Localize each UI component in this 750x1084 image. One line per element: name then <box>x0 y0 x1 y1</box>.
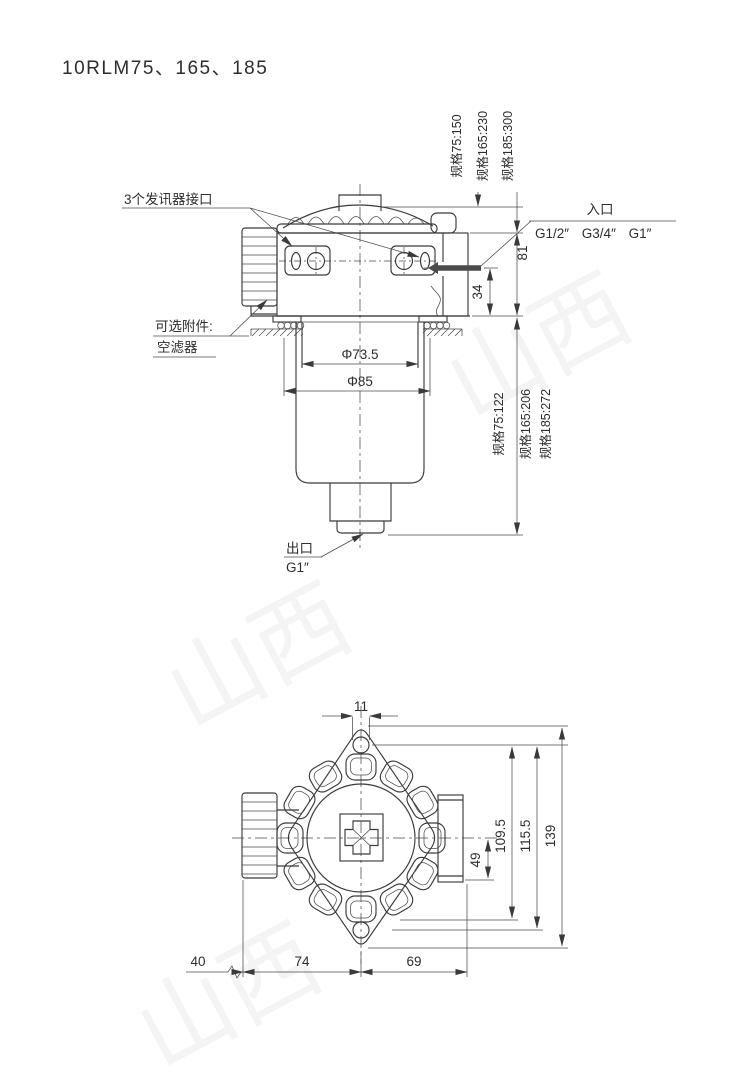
cap-grip-scallops <box>288 217 424 225</box>
breather-foot <box>251 306 277 314</box>
spec-bowl-75: 规格75:122 <box>491 392 506 455</box>
head-break-line <box>431 286 440 316</box>
breather-ribs <box>242 237 277 300</box>
dim-69: 69 <box>406 954 421 969</box>
inlet-flow-arrow <box>428 262 481 274</box>
optional-accessory-item: 空滤器 <box>157 340 198 355</box>
dim-11: 11 <box>354 699 368 714</box>
sensor-ports-callout: 3个发讯器接口 <box>124 191 213 207</box>
spec-bowl-185: 规格185:272 <box>538 389 553 459</box>
watermark-text: 山西 <box>120 906 338 1084</box>
center-outlet-square <box>340 814 383 861</box>
drawing-page: 山西 山西 山西 <box>0 0 750 1084</box>
spec-height-185: 规格185:300 <box>500 111 515 181</box>
dim-inner-diameter: Φ73.5 <box>341 347 378 362</box>
page-title: 10RLM75、165、185 <box>62 58 268 79</box>
flange-foot <box>419 316 447 322</box>
inlet-threads: G1/2″ G3/4″ G1″ <box>535 226 652 241</box>
sensor-port-group-2 <box>391 246 435 275</box>
dim-81: 81 <box>515 245 530 260</box>
dim-40: 40 <box>190 954 205 969</box>
flange-foot <box>273 316 301 322</box>
dim-115-5: 115.5 <box>518 820 533 853</box>
air-breather-block <box>242 228 277 314</box>
cap-side-tab <box>431 213 456 233</box>
optional-accessory-title: 可选附件: <box>155 319 213 334</box>
bottom-view <box>186 706 568 978</box>
outlet-boss <box>330 483 391 533</box>
side-port-block <box>438 795 463 882</box>
slot-dimension <box>322 716 398 740</box>
spec-height-75: 规格75:150 <box>449 114 464 177</box>
spec-height-165: 规格165:230 <box>475 111 490 181</box>
dim-49: 49 <box>468 852 483 867</box>
mounting-plate-hatch <box>251 329 462 336</box>
sensor-port-group-1 <box>285 246 330 275</box>
air-breather-block-bottom <box>242 793 299 878</box>
dim-109-5: 109.5 <box>493 819 508 853</box>
dim-34: 34 <box>470 284 485 300</box>
dim-74: 74 <box>294 954 310 969</box>
dim-139: 139 <box>543 825 558 848</box>
watermark-text: 山西 <box>150 566 368 749</box>
filter-cap <box>277 195 456 233</box>
technical-drawing: 山西 山西 山西 <box>0 0 750 1084</box>
bottom-view-right-dimensions <box>368 726 568 948</box>
dim-outer-diameter: Φ85 <box>347 374 373 389</box>
outlet-label: 出口 <box>286 541 313 556</box>
cap-lip <box>277 224 437 233</box>
outlet-thread: G1″ <box>286 560 309 575</box>
inlet-label: 入口 <box>587 202 614 217</box>
spec-bowl-165: 规格165:206 <box>518 389 533 459</box>
